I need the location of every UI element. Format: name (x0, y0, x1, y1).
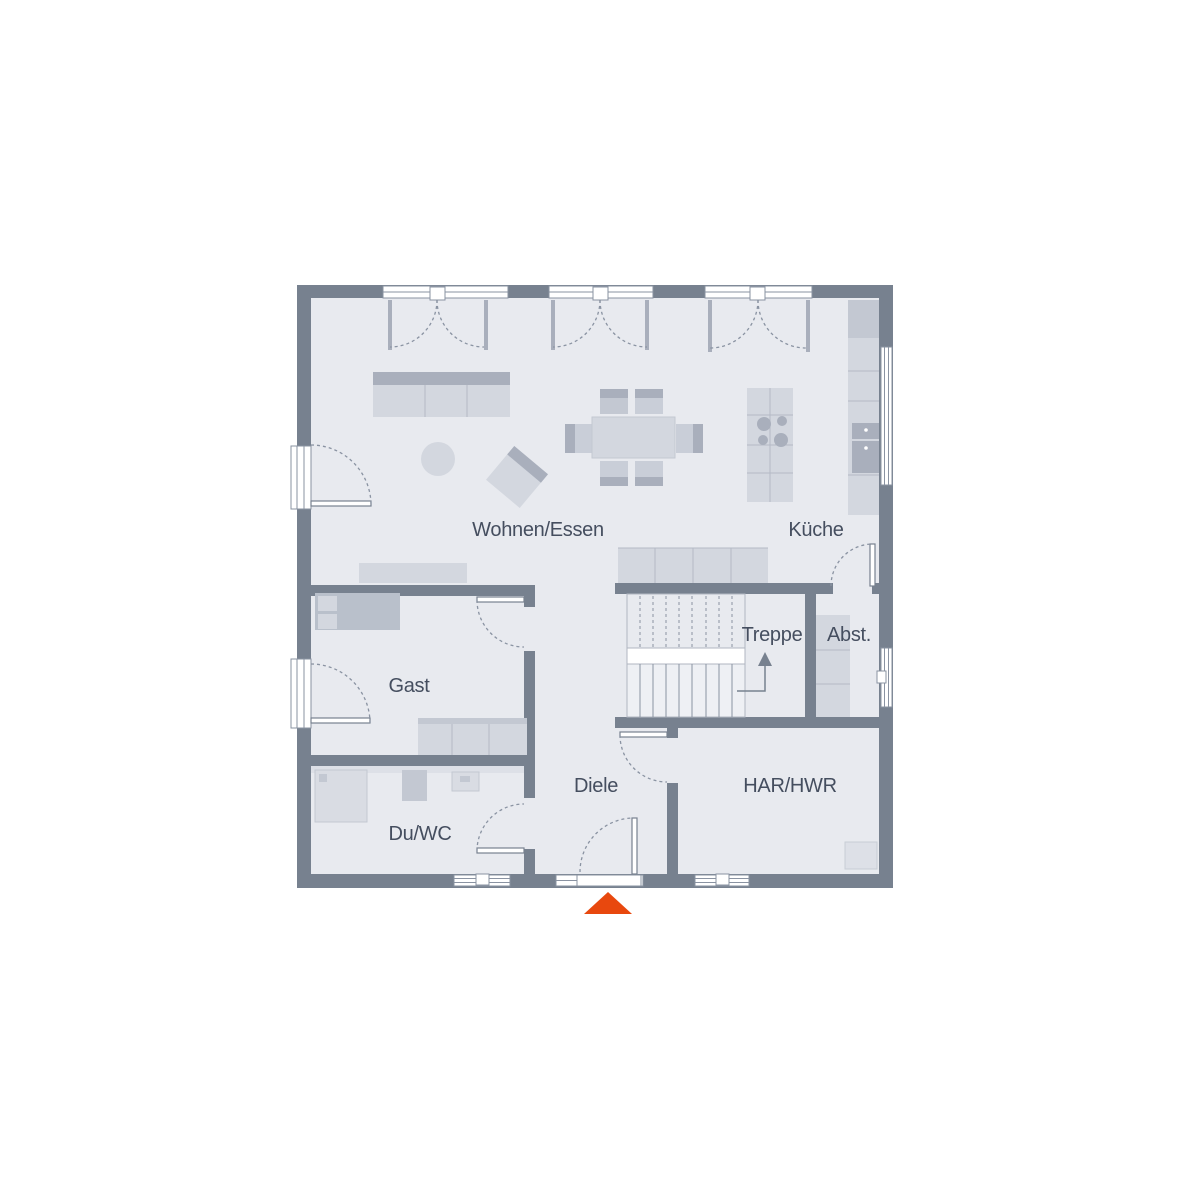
room-label-du-wc: Du/WC (389, 823, 452, 845)
shutter-box-icon (430, 287, 445, 300)
shutter-box-icon (716, 874, 729, 885)
kitchen-island (747, 388, 793, 502)
shower-drain-icon (319, 774, 327, 782)
toilet-tank-icon (460, 776, 470, 782)
sideboard-essen (618, 548, 768, 583)
door-leaf (311, 501, 371, 506)
kitchen-counter (848, 300, 879, 515)
door-leaf (632, 818, 637, 874)
room-label-kueche: Küche (788, 519, 843, 541)
dining-table (592, 417, 675, 458)
chair-back (600, 389, 628, 398)
door-leaf (870, 544, 875, 586)
room-label-treppe: Treppe (742, 624, 803, 646)
wall-gast-duwc (311, 755, 524, 766)
stair-cut-line (627, 648, 745, 664)
wall-gast-diele-top (524, 585, 535, 607)
window-handle-icon (877, 671, 886, 683)
window-kueche (881, 347, 892, 485)
door-leaf (477, 597, 524, 602)
window-har (695, 874, 749, 886)
shutter-box-icon (750, 287, 765, 300)
window-frame (881, 347, 892, 485)
room-label-gast: Gast (388, 675, 430, 697)
door-leaf-left (551, 300, 555, 350)
chair-back (693, 424, 703, 453)
door-leaf-left (388, 300, 392, 350)
wall-kueche-treppe (615, 583, 833, 594)
oven-appliance (852, 441, 879, 473)
chair-back (635, 389, 663, 398)
desk-drawer (318, 614, 337, 629)
door-leaf-right (645, 300, 649, 350)
entrance-arrow (584, 892, 632, 914)
wardrobe-edge (418, 718, 527, 724)
cooktop-burner (757, 417, 771, 431)
window-frame (291, 659, 311, 728)
window-duwc (454, 874, 510, 886)
wall-treppe-har (615, 717, 879, 728)
door-leaf (620, 732, 667, 737)
shutter-box-icon (593, 287, 608, 300)
floor-plan-canvas: Wohnen/Essen Küche Gast Treppe Abst. Die… (0, 0, 1200, 1200)
wall-duwc-diele (524, 849, 535, 874)
coffee-table (421, 442, 455, 476)
chair-back (635, 477, 663, 486)
room-label-har-hwr: HAR/HWR (743, 775, 836, 797)
sofa-seat (373, 385, 510, 417)
cooktop-burner (774, 433, 788, 447)
wall-left (297, 285, 311, 888)
window-frame (291, 446, 311, 509)
gast-desk (315, 593, 400, 630)
cooktop-burner (758, 435, 768, 445)
gast-wardrobe (418, 718, 527, 755)
room-label-diele: Diele (574, 775, 618, 797)
wall-har-doorpost (667, 728, 678, 738)
room-label-wohnen-essen: Wohnen/Essen (472, 519, 604, 541)
appliance-knob-icon (864, 428, 868, 432)
sideboard-wohnen (359, 563, 467, 583)
appliance-knob-icon (864, 446, 868, 450)
sofa-back (373, 372, 510, 385)
chair-back (565, 424, 575, 453)
sofa (373, 372, 510, 417)
wall-treppe-abst (805, 594, 816, 728)
shutter-box-icon (476, 874, 489, 885)
door-leaf-left (708, 300, 712, 352)
cooktop-burner (777, 416, 787, 426)
floor-plan-drawing: Wohnen/Essen Küche Gast Treppe Abst. Die… (0, 0, 1200, 1200)
door-leaf-right (484, 300, 488, 350)
har-appliance (845, 842, 877, 869)
chair-back (600, 477, 628, 486)
tall-cabinet (848, 300, 879, 338)
door-leaf (311, 718, 370, 723)
sink (402, 770, 427, 801)
desk-drawer (318, 596, 337, 611)
wall-diele-har (667, 783, 678, 874)
stair-lower-flight (627, 664, 745, 717)
door-leaf (477, 848, 524, 853)
door-leaf-right (806, 300, 810, 352)
room-label-abst: Abst. (827, 624, 871, 646)
